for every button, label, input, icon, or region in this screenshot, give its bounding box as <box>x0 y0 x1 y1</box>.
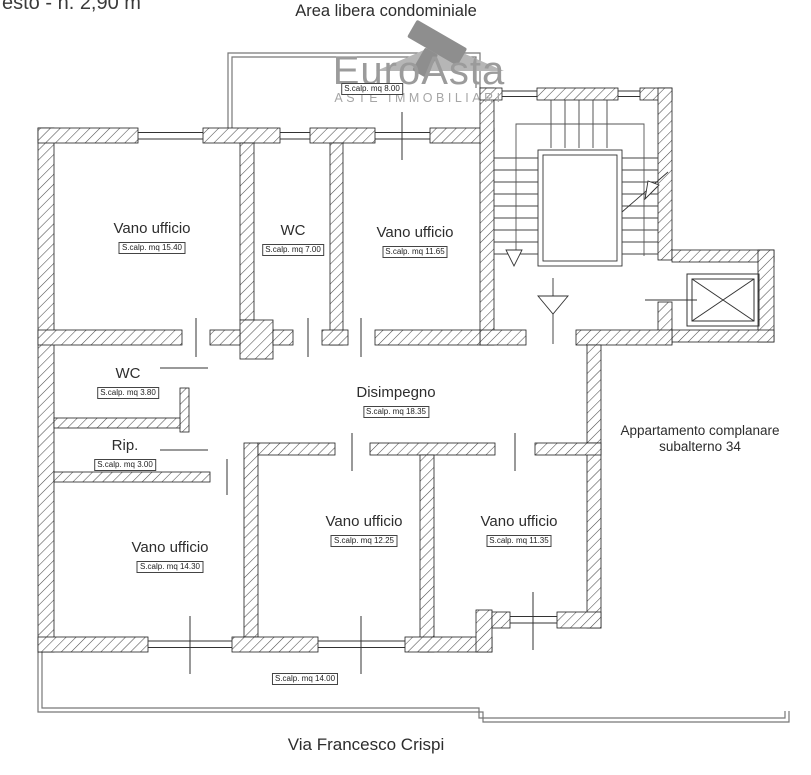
room-label-vano-ufficio-2: Vano ufficio S.calp. mq 11.65 <box>377 224 454 259</box>
floor-plan-canvas: esto - h. 2,90 m Area libera condominial… <box>0 0 811 775</box>
balcony-area-box: S.calp. mq 14.00 <box>272 673 338 685</box>
room-label-vano-ufficio-4: Vano ufficio S.calp. mq 12.25 <box>326 513 403 548</box>
room-label-wc-1: WC S.calp. mq 7.00 <box>262 222 324 257</box>
adjacent-apartment-note-line2: subalterno 34 <box>620 439 779 455</box>
adjacent-apartment-note: Appartamento complanare subalterno 34 <box>620 423 779 455</box>
area-libera-title: Area libera condominiale <box>295 2 477 21</box>
room-label-rip: Rip. S.calp. mq 3.00 <box>94 437 156 472</box>
adjacent-apartment-note-line1: Appartamento complanare <box>620 423 779 439</box>
room-label-vano-ufficio-5: Vano ufficio S.calp. mq 11.35 <box>481 513 558 548</box>
height-note: esto - h. 2,90 m <box>2 0 141 15</box>
area-libera-area-box: S.calp. mq 8.00 <box>341 83 403 95</box>
stair-well <box>538 150 622 266</box>
down-arrow-icon <box>538 278 568 344</box>
room-label-vano-ufficio-1: Vano ufficio S.calp. mq 15.40 <box>114 220 191 255</box>
room-label-vano-ufficio-3: Vano ufficio S.calp. mq 14.30 <box>132 539 209 574</box>
stair-walk-line <box>516 124 644 256</box>
room-label-disimpegno: Disimpegno S.calp. mq 18.35 <box>356 384 435 419</box>
street-label: Via Francesco Crispi <box>288 735 445 755</box>
stair-treads <box>494 100 658 254</box>
balcony-outline <box>38 652 789 722</box>
down-arrow-icon <box>506 250 522 266</box>
room-label-wc-2: WC S.calp. mq 3.80 <box>97 365 159 400</box>
staircase <box>494 100 668 344</box>
windows <box>138 91 640 648</box>
elevator-x-icon <box>687 274 759 326</box>
